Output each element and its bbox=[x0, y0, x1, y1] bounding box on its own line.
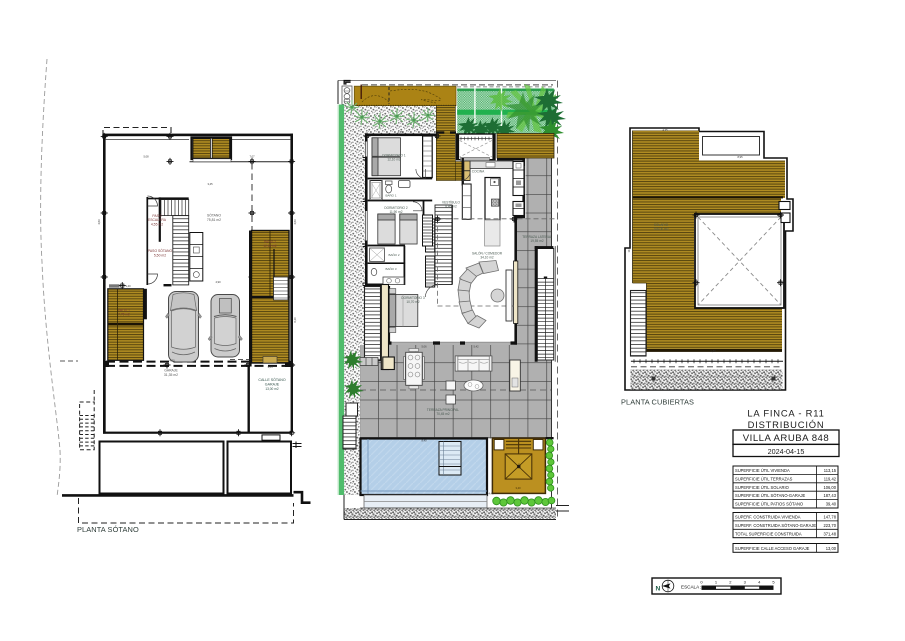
svg-text:13,00: 13,00 bbox=[826, 546, 837, 551]
svg-text:8,45 m2: 8,45 m2 bbox=[445, 205, 457, 209]
svg-text:2024-04-15: 2024-04-15 bbox=[768, 447, 805, 456]
svg-text:34,10 m2: 34,10 m2 bbox=[480, 256, 494, 260]
svg-text:BAÑO 1: BAÑO 1 bbox=[385, 193, 396, 198]
svg-text:10,5: 10,5 bbox=[627, 247, 631, 253]
svg-text:3,40: 3,40 bbox=[515, 486, 521, 490]
svg-text:ESCALA :: ESCALA : bbox=[681, 585, 701, 590]
svg-text:11,90 m2: 11,90 m2 bbox=[389, 210, 402, 214]
svg-text:19,55 m2: 19,55 m2 bbox=[530, 239, 544, 243]
svg-text:3,45: 3,45 bbox=[207, 182, 213, 186]
svg-text:106,00 m2: 106,00 m2 bbox=[653, 227, 668, 231]
svg-text:39,40: 39,40 bbox=[826, 502, 837, 507]
svg-text:113,15: 113,15 bbox=[824, 468, 837, 473]
svg-text:12,15 m2: 12,15 m2 bbox=[263, 244, 277, 248]
svg-text:31,35 m2: 31,35 m2 bbox=[164, 373, 178, 377]
svg-text:SÓTANO: SÓTANO bbox=[207, 213, 221, 218]
svg-text:SUPERFICIE ÚTIL SOLARIO: SUPERFICIE ÚTIL SOLARIO bbox=[735, 485, 789, 490]
svg-text:PLANTA SÓTANO: PLANTA SÓTANO bbox=[77, 525, 139, 534]
svg-text:223,70: 223,70 bbox=[823, 523, 836, 528]
svg-text:147,78: 147,78 bbox=[823, 515, 836, 520]
svg-text:PASO SÓTANO: PASO SÓTANO bbox=[148, 248, 173, 253]
svg-text:4,40: 4,40 bbox=[517, 463, 521, 469]
svg-text:1,40: 1,40 bbox=[125, 284, 131, 288]
svg-text:6,20: 6,20 bbox=[293, 317, 297, 323]
svg-text:SUPERF. CONSTRUIDA SÓTANO-GARA: SUPERF. CONSTRUIDA SÓTANO-GARAJE bbox=[735, 523, 816, 528]
svg-text:9,80: 9,80 bbox=[710, 349, 716, 353]
svg-text:TOTAL SUPERFICIE CONSTRUIDA: TOTAL SUPERFICIE CONSTRUIDA bbox=[735, 531, 802, 536]
svg-text:VILLA ARUBA 848: VILLA ARUBA 848 bbox=[743, 433, 829, 444]
svg-text:5,42: 5,42 bbox=[473, 345, 479, 349]
svg-text:LA FINCA - R11: LA FINCA - R11 bbox=[747, 408, 824, 419]
svg-text:COCINA: COCINA bbox=[472, 170, 485, 174]
svg-text:4,40: 4,40 bbox=[488, 492, 494, 496]
svg-text:BAÑO 2: BAÑO 2 bbox=[388, 252, 399, 257]
svg-text:SUPERFICIE CALLE ACCESO GARAJE: SUPERFICIE CALLE ACCESO GARAJE bbox=[735, 546, 810, 551]
svg-text:5,08: 5,08 bbox=[143, 155, 149, 159]
svg-text:8,95: 8,95 bbox=[737, 155, 743, 159]
svg-text:4,90: 4,90 bbox=[215, 280, 221, 284]
svg-text:12,10 m2: 12,10 m2 bbox=[387, 158, 401, 162]
svg-text:4,20: 4,20 bbox=[169, 359, 175, 363]
svg-text:371,48: 371,48 bbox=[823, 531, 836, 536]
svg-text:4,63: 4,63 bbox=[293, 219, 297, 225]
svg-text:4,63: 4,63 bbox=[97, 219, 101, 225]
svg-text:119,42: 119,42 bbox=[824, 476, 837, 481]
svg-text:BAÑO 3: BAÑO 3 bbox=[385, 266, 396, 271]
svg-text:5,06: 5,06 bbox=[421, 345, 427, 349]
svg-text:PLANTA CUBIERTAS: PLANTA CUBIERTAS bbox=[621, 398, 694, 407]
svg-text:SUPERFICIE ÚTIL PATIOS SÓTANO: SUPERFICIE ÚTIL PATIOS SÓTANO bbox=[735, 502, 803, 507]
svg-text:N: N bbox=[656, 586, 661, 593]
svg-text:SUPERFICIE ÚTIL TERRAZAS: SUPERFICIE ÚTIL TERRAZAS bbox=[735, 476, 793, 481]
svg-text:13,00 m2: 13,00 m2 bbox=[265, 387, 279, 391]
svg-text:8,40: 8,40 bbox=[421, 439, 427, 443]
svg-text:10,70 m2: 10,70 m2 bbox=[406, 300, 420, 304]
svg-text:4,55 m2: 4,55 m2 bbox=[151, 223, 163, 227]
svg-text:70,45 m2: 70,45 m2 bbox=[436, 412, 450, 416]
svg-text:187,43: 187,43 bbox=[823, 493, 836, 498]
svg-text:106,00: 106,00 bbox=[823, 485, 836, 490]
svg-text:3,65: 3,65 bbox=[267, 365, 273, 369]
svg-text:5,50 m2: 5,50 m2 bbox=[154, 254, 166, 258]
svg-text:SUPERF. CONSTRUIDA VIVIENDA: SUPERF. CONSTRUIDA VIVIENDA bbox=[735, 515, 801, 520]
svg-text:4,35: 4,35 bbox=[662, 128, 668, 132]
svg-text:7,75 m2: 7,75 m2 bbox=[118, 313, 130, 317]
svg-text:6,10: 6,10 bbox=[360, 247, 364, 253]
svg-text:GARAJE: GARAJE bbox=[265, 383, 280, 387]
svg-text:7,07: 7,07 bbox=[249, 155, 255, 159]
svg-text:SUPERFICIE ÚTIL VIVIENDA: SUPERFICIE ÚTIL VIVIENDA bbox=[735, 468, 790, 473]
svg-text:ESCALERA: ESCALERA bbox=[148, 218, 167, 222]
svg-text:SUPERFICIE ÚTIL SÓTANO-GARAJE: SUPERFICIE ÚTIL SÓTANO-GARAJE bbox=[735, 493, 806, 498]
svg-text:DISTRIBUCIÓN: DISTRIBUCIÓN bbox=[748, 419, 825, 430]
svg-text:4,25: 4,25 bbox=[397, 130, 403, 134]
svg-text:75,81 m2: 75,81 m2 bbox=[207, 218, 221, 222]
svg-text:CALLE SÓTANO: CALLE SÓTANO bbox=[258, 377, 285, 382]
